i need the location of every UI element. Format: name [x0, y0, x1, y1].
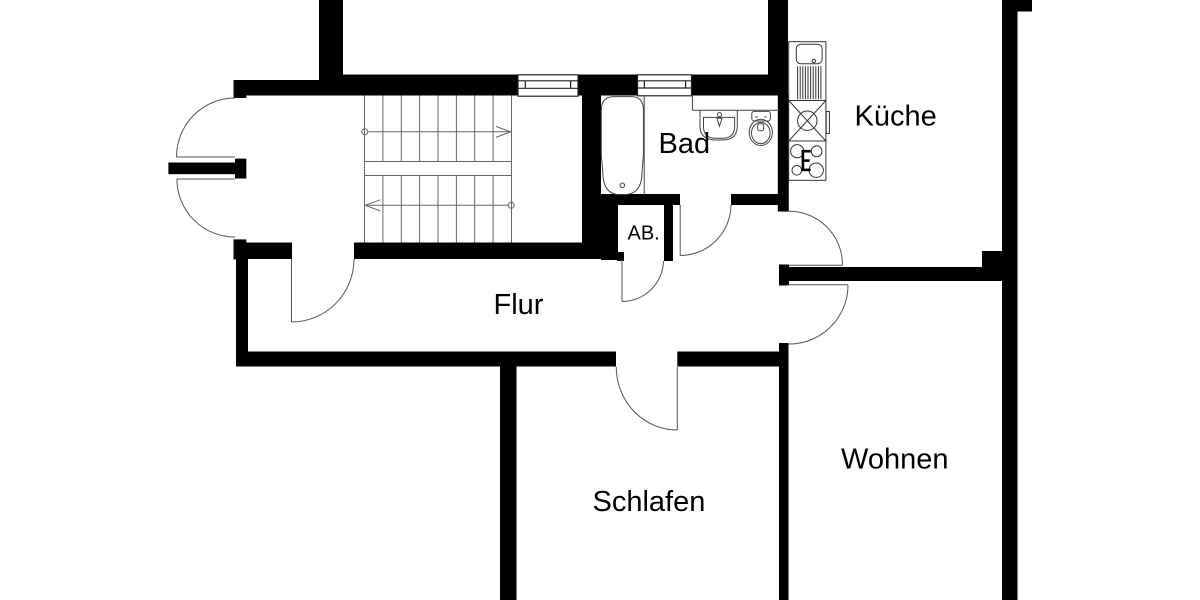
svg-text:Schlafen: Schlafen [593, 486, 706, 518]
svg-text:Bad: Bad [659, 128, 711, 160]
svg-text:Küche: Küche [855, 100, 937, 132]
svg-text:Flur: Flur [494, 289, 544, 321]
svg-text:Wohnen: Wohnen [841, 444, 949, 476]
svg-text:AB.: AB. [628, 222, 660, 244]
